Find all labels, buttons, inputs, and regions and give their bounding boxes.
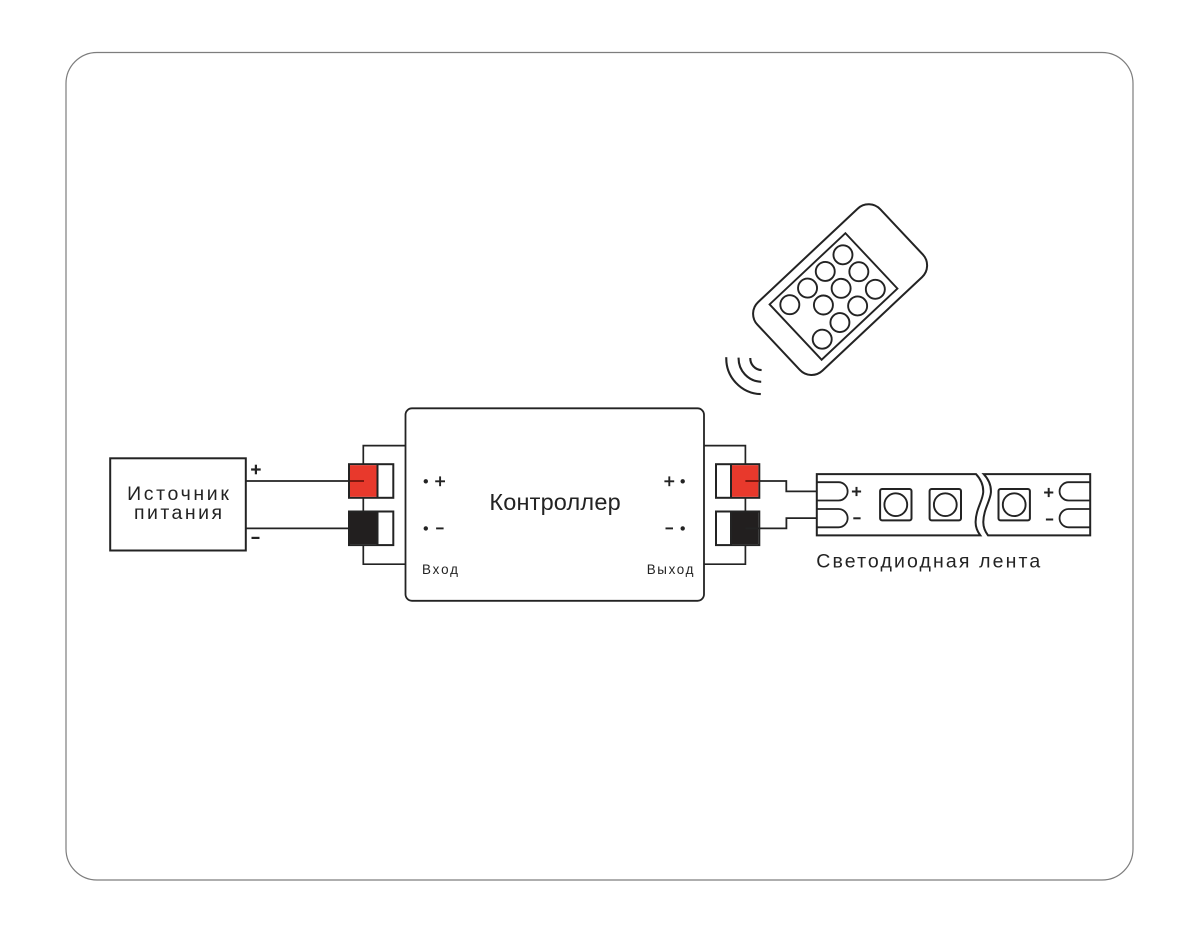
svg-text:Выход: Выход	[647, 562, 694, 577]
svg-text:Контроллер: Контроллер	[489, 489, 620, 515]
svg-text:питания: питания	[134, 502, 222, 524]
svg-text:Светодиодная лента: Светодиодная лента	[816, 551, 1040, 573]
